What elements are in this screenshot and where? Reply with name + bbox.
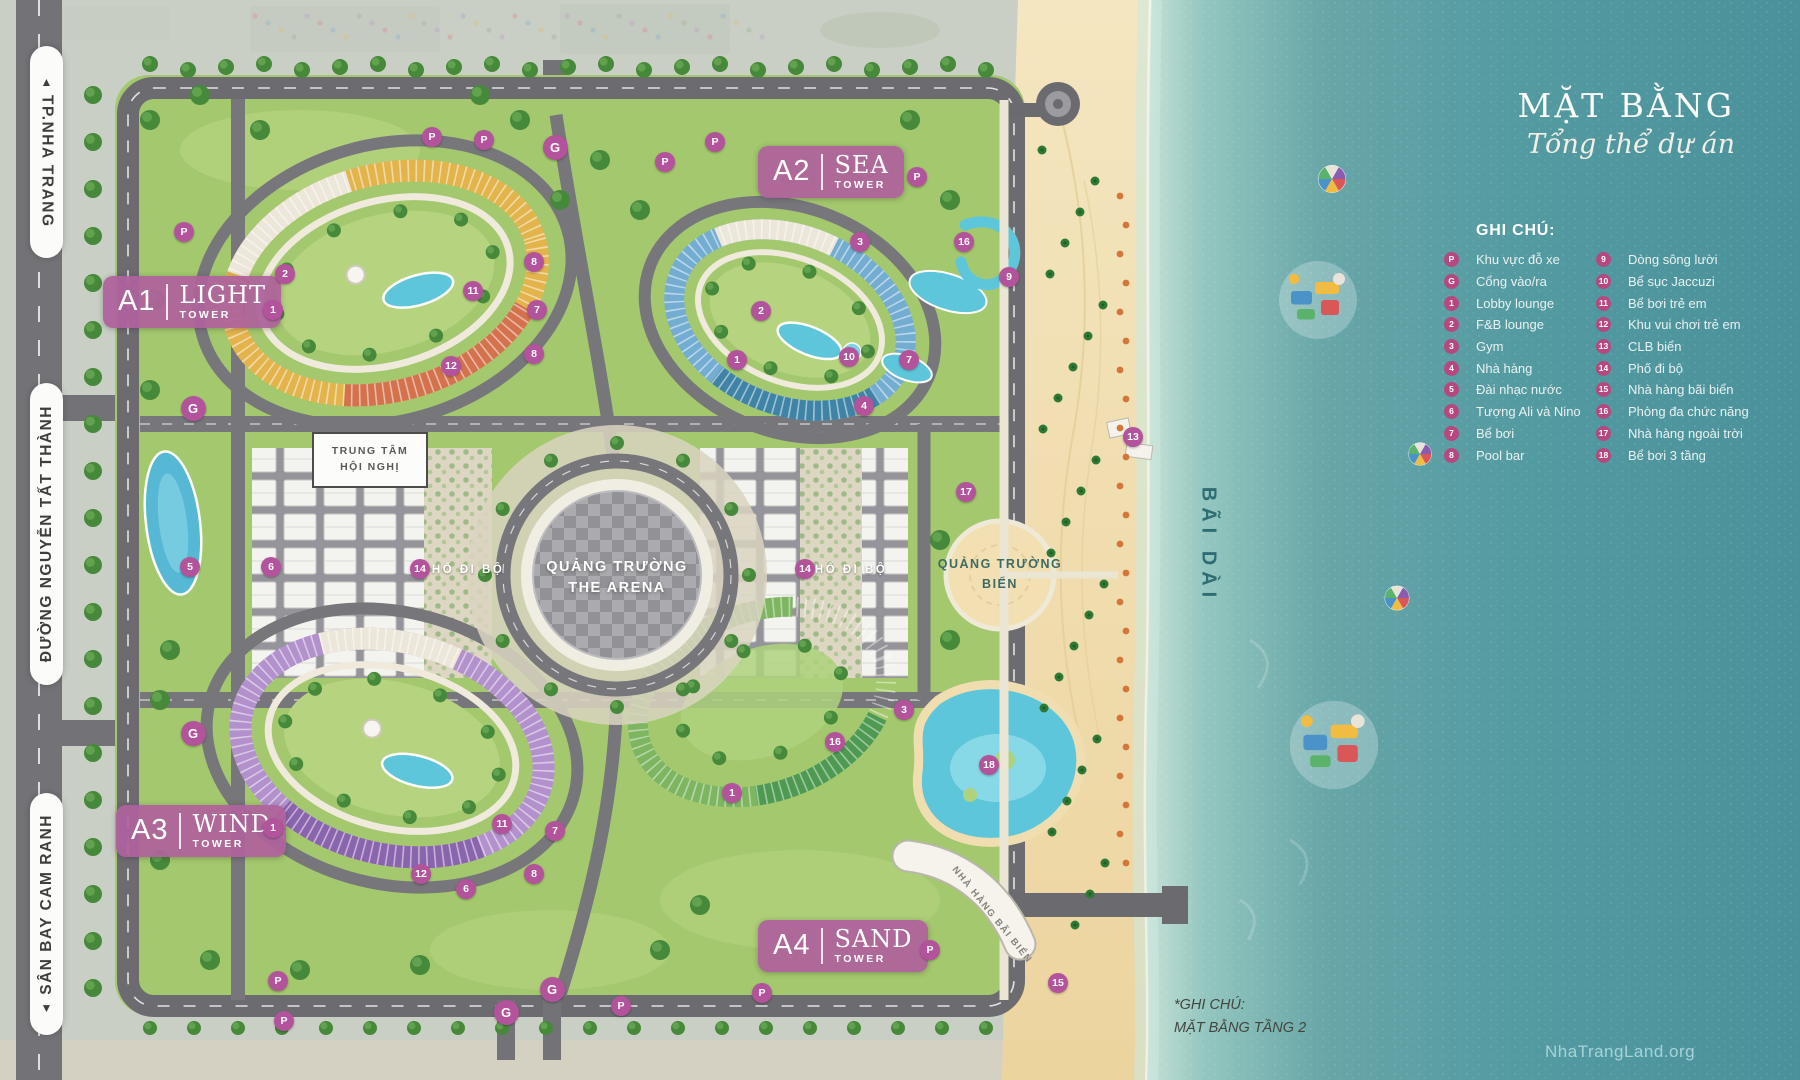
map-marker-8: 8 bbox=[524, 252, 544, 272]
map-marker-8: 8 bbox=[524, 864, 544, 884]
map-marker-16: 16 bbox=[825, 732, 845, 752]
map-marker-P: P bbox=[655, 152, 675, 172]
map-marker-10: 10 bbox=[839, 347, 859, 367]
map-marker-G: G bbox=[181, 396, 206, 421]
map-marker-P: P bbox=[474, 130, 494, 150]
map-marker-7: 7 bbox=[545, 821, 565, 841]
map-marker-9: 9 bbox=[999, 267, 1019, 287]
map-marker-7: 7 bbox=[527, 300, 547, 320]
map-marker-1: 1 bbox=[263, 818, 283, 838]
map-marker-7: 7 bbox=[899, 350, 919, 370]
map-marker-5: 5 bbox=[180, 557, 200, 577]
map-marker-P: P bbox=[752, 983, 772, 1003]
map-marker-G: G bbox=[181, 721, 206, 746]
map-marker-16: 16 bbox=[954, 232, 974, 252]
map-marker-3: 3 bbox=[894, 700, 914, 720]
map-marker-1: 1 bbox=[722, 783, 742, 803]
map-marker-6: 6 bbox=[261, 557, 281, 577]
map-marker-14: 14 bbox=[795, 559, 815, 579]
map-marker-G: G bbox=[543, 135, 568, 160]
map-marker-G: G bbox=[540, 977, 565, 1002]
map-marker-P: P bbox=[920, 940, 940, 960]
map-marker-11: 11 bbox=[463, 281, 483, 301]
map-marker-13: 13 bbox=[1123, 427, 1143, 447]
map-marker-P: P bbox=[422, 127, 442, 147]
map-marker-P: P bbox=[174, 222, 194, 242]
map-marker-P: P bbox=[705, 132, 725, 152]
map-marker-2: 2 bbox=[751, 301, 771, 321]
map-marker-8: 8 bbox=[524, 344, 544, 364]
map-marker-17: 17 bbox=[956, 482, 976, 502]
map-marker-14: 14 bbox=[410, 559, 430, 579]
map-marker-P: P bbox=[611, 996, 631, 1016]
map-marker-P: P bbox=[907, 167, 927, 187]
map-marker-18: 18 bbox=[979, 755, 999, 775]
map-marker-12: 12 bbox=[411, 864, 431, 884]
map-marker-3: 3 bbox=[850, 232, 870, 252]
map-marker-15: 15 bbox=[1048, 973, 1068, 993]
map-marker-1: 1 bbox=[263, 300, 283, 320]
map-marker-6: 6 bbox=[456, 879, 476, 899]
marker-layer: PPPPPPPPPPPGGGGG111122334566777888910111… bbox=[0, 0, 1800, 1080]
map-marker-P: P bbox=[268, 971, 288, 991]
map-marker-G: G bbox=[494, 1000, 519, 1025]
map-marker-P: P bbox=[274, 1011, 294, 1031]
map-marker-11: 11 bbox=[492, 814, 512, 834]
map-marker-12: 12 bbox=[441, 356, 461, 376]
master-plan-map: MẶT BẰNG Tổng thể dự án GHI CHÚ: PKhu vự… bbox=[0, 0, 1800, 1080]
map-marker-1: 1 bbox=[727, 350, 747, 370]
map-marker-4: 4 bbox=[854, 396, 874, 416]
map-marker-2: 2 bbox=[275, 264, 295, 284]
